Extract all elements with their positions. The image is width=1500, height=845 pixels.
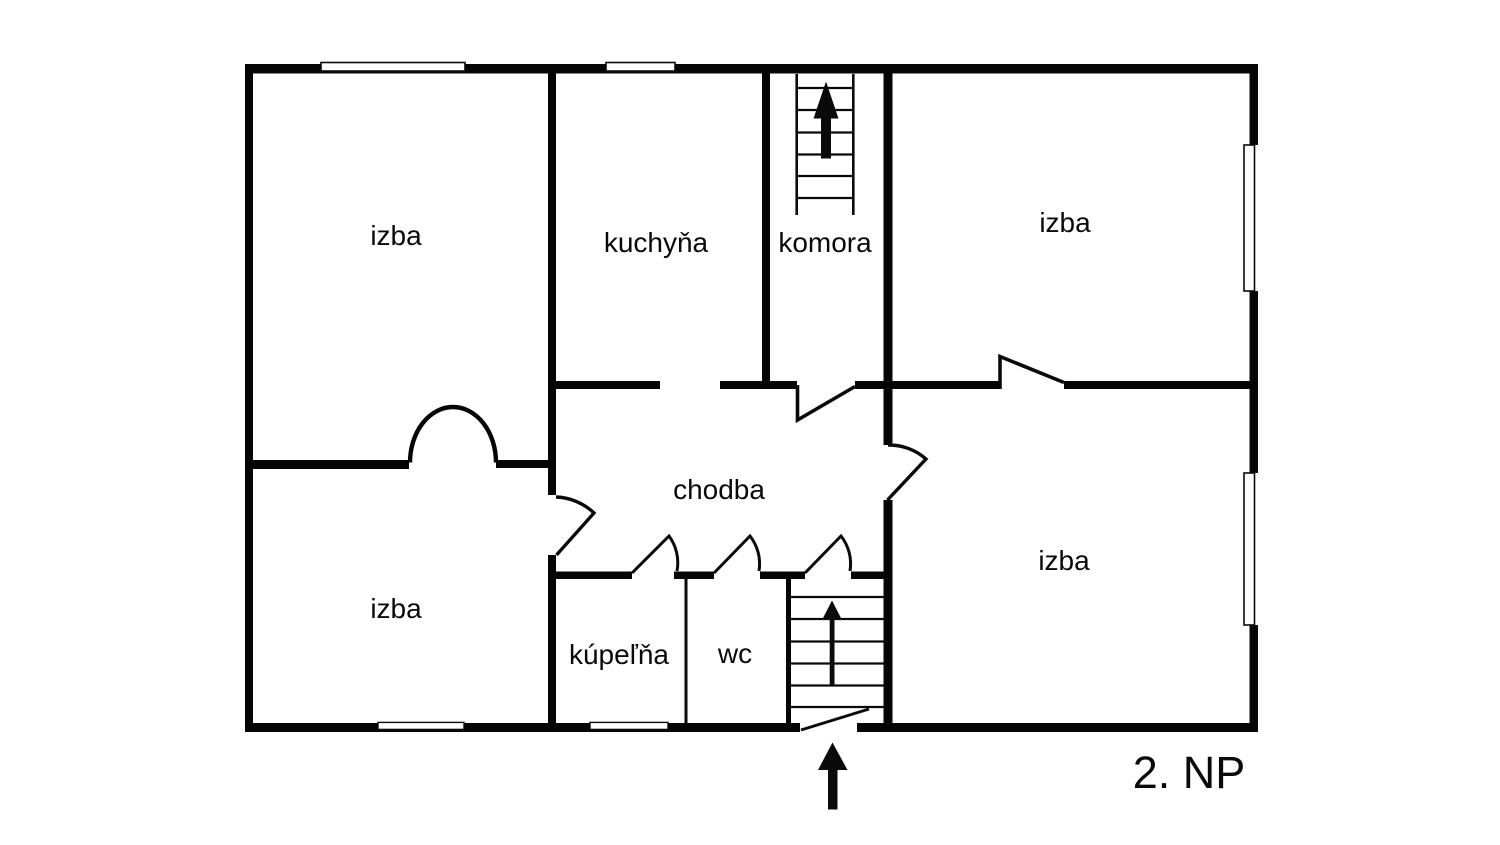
svg-text:kúpeľňa: kúpeľňa <box>569 639 669 670</box>
svg-text:izba: izba <box>1038 545 1090 576</box>
svg-text:izba: izba <box>370 220 422 251</box>
svg-text:komora: komora <box>778 227 872 258</box>
svg-text:2. NP: 2. NP <box>1133 747 1246 798</box>
svg-text:izba: izba <box>1039 207 1091 238</box>
svg-text:chodba: chodba <box>673 474 765 505</box>
svg-text:kuchyňa: kuchyňa <box>604 227 709 258</box>
svg-text:wc: wc <box>717 638 752 669</box>
svg-text:izba: izba <box>370 593 422 624</box>
